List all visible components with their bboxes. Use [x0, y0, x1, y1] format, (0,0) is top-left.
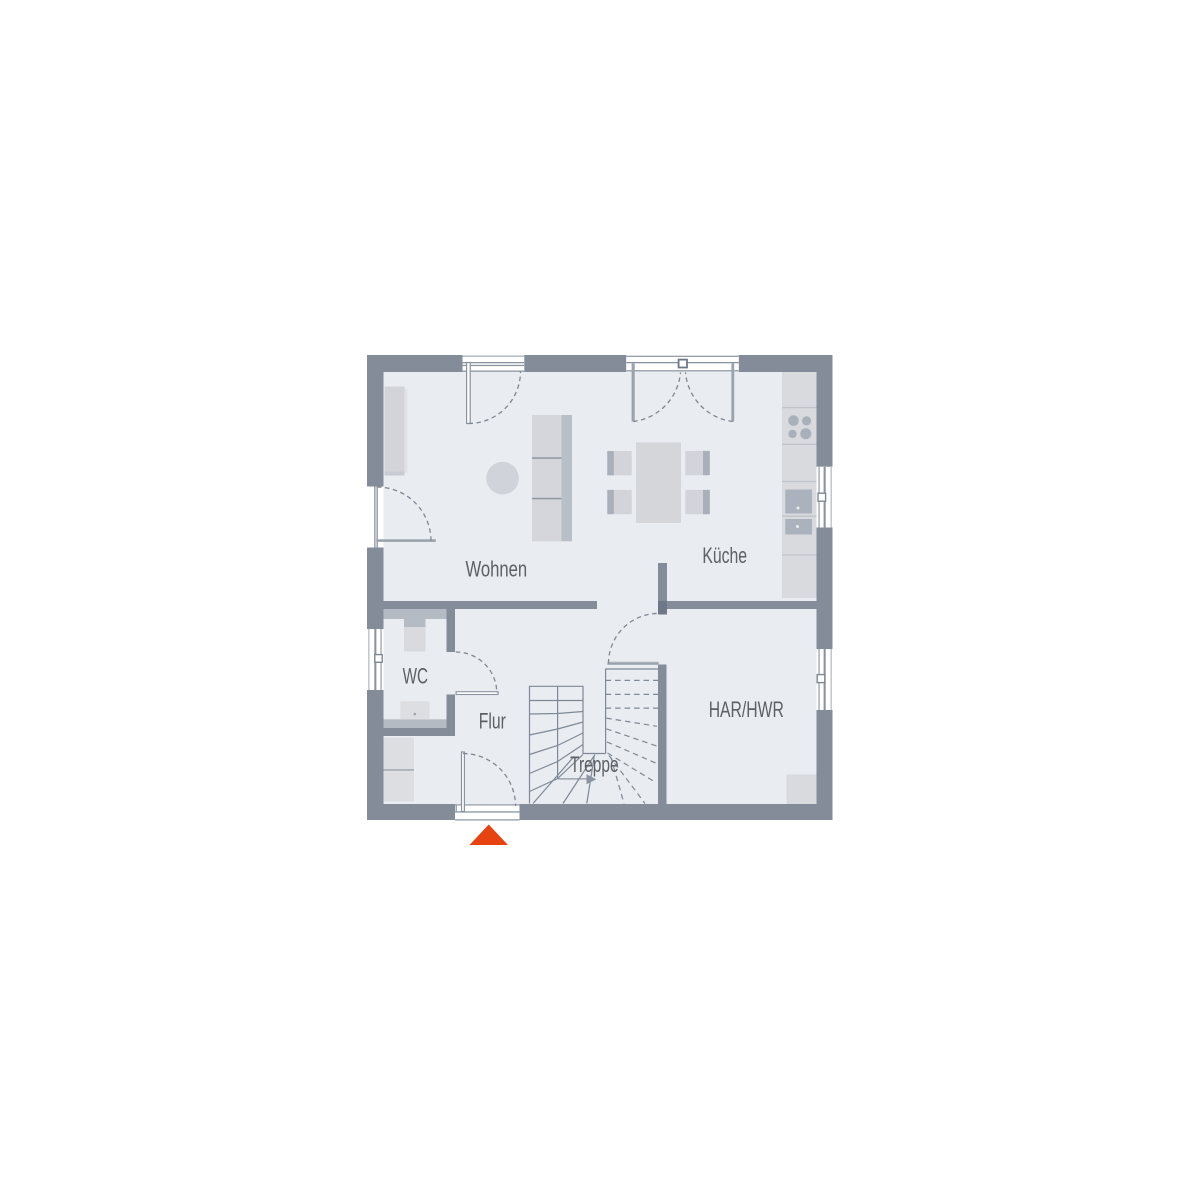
svg-text:Wohnen: Wohnen	[465, 556, 527, 581]
svg-text:WC: WC	[403, 664, 428, 689]
svg-text:Treppe: Treppe	[570, 752, 619, 777]
svg-text:Küche: Küche	[702, 543, 747, 568]
svg-text:Flur: Flur	[479, 708, 506, 733]
svg-text:HAR/HWR: HAR/HWR	[709, 697, 784, 722]
